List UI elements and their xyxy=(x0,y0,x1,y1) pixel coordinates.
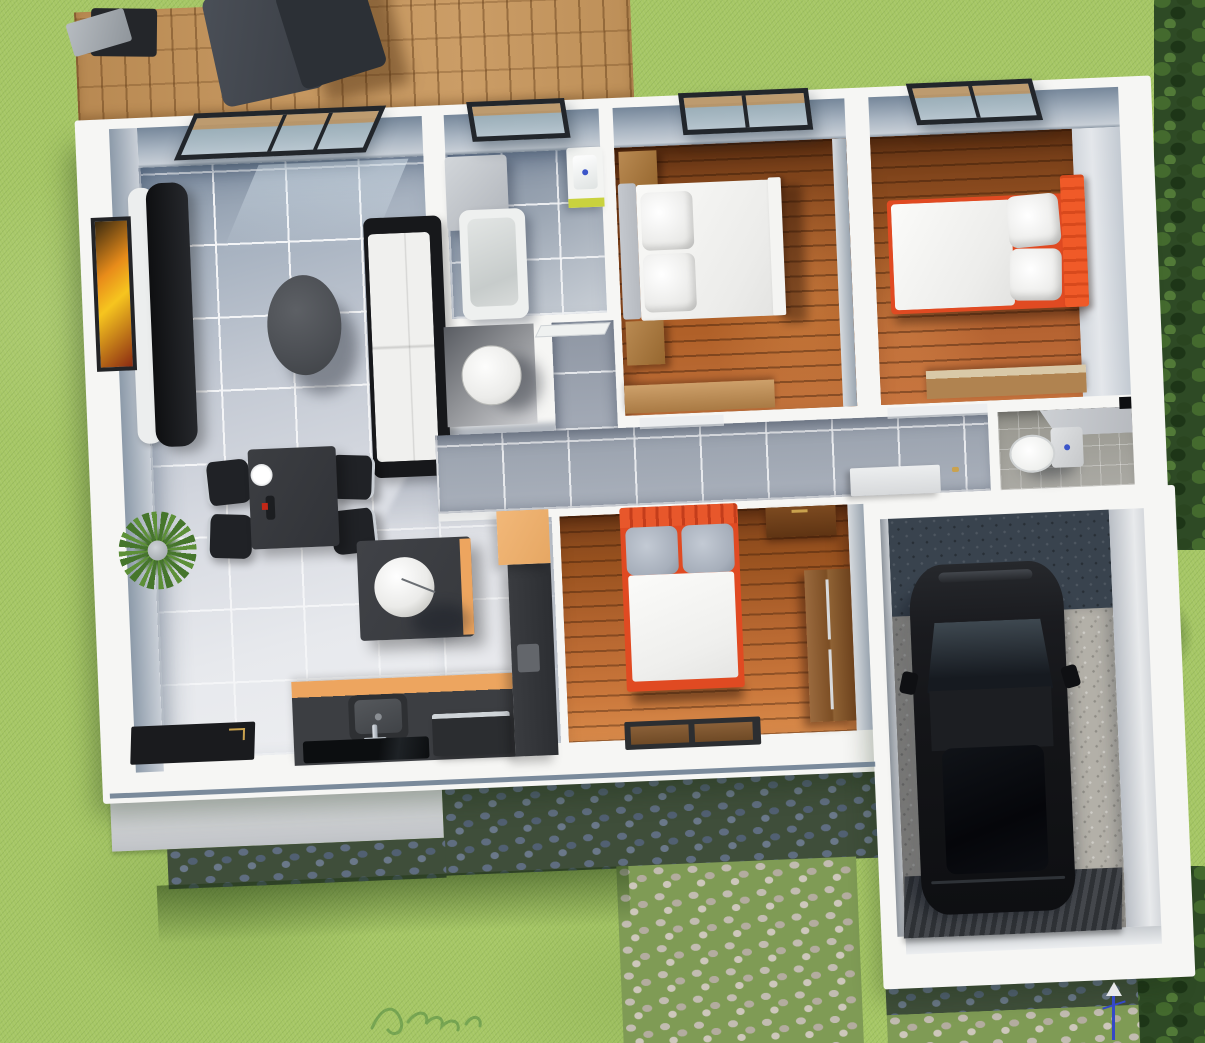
doormat-panel xyxy=(694,722,753,742)
bed3-duvet xyxy=(628,571,738,681)
window-mullion xyxy=(968,86,981,118)
wardrobe-handle xyxy=(825,579,831,639)
dishwasher-icon xyxy=(432,711,512,756)
mat-corner-detail xyxy=(229,728,245,741)
window-mullion xyxy=(267,115,287,152)
dresser-handle xyxy=(791,509,807,513)
window-mullion xyxy=(313,113,333,150)
car-mirror-left xyxy=(899,671,919,696)
fridge-handle xyxy=(517,644,540,673)
bedroom3-doormat xyxy=(624,716,761,750)
living-window-icon xyxy=(174,106,386,161)
site xyxy=(0,0,1205,1043)
bed1-pillow xyxy=(640,191,694,251)
bed3-pillow-gray xyxy=(625,526,679,576)
car-rear-glass xyxy=(942,745,1049,875)
car-front-trim xyxy=(938,569,1032,583)
wine-label xyxy=(262,503,268,510)
bed2-pillow xyxy=(1005,192,1062,249)
garden-light-shade xyxy=(1106,982,1122,996)
doormat-panel xyxy=(630,724,689,744)
scene-3d-floor-plan xyxy=(0,0,1205,1043)
window-mullion xyxy=(742,95,750,127)
bathtub-icon xyxy=(459,208,530,321)
garden-light-pole xyxy=(1112,992,1115,1040)
car-icon xyxy=(908,560,1077,916)
bedroom1-window-icon xyxy=(678,88,813,135)
bed3-pillow-gray xyxy=(681,523,735,573)
bed2-duvet xyxy=(891,199,1015,310)
kitchen-sink-icon xyxy=(348,693,409,741)
garden-light-icon xyxy=(1094,982,1134,1042)
wall-art-icon xyxy=(91,216,137,372)
sofa-cushions xyxy=(368,232,439,462)
potted-plant-icon xyxy=(117,510,198,595)
corridor-floor xyxy=(551,320,617,431)
toilet-tank xyxy=(1050,427,1084,468)
dining-chair xyxy=(207,514,253,559)
bed1-nightstand-lower xyxy=(625,320,665,366)
dining-chair xyxy=(203,458,253,507)
bedroom2-window-icon xyxy=(906,78,1043,125)
entry-mat xyxy=(130,722,255,765)
bathroom-window-icon xyxy=(466,98,570,142)
cobblestone-path xyxy=(616,856,865,1043)
orange-cabinet xyxy=(496,509,550,565)
light-switch-icon xyxy=(1119,397,1131,409)
car-windshield xyxy=(924,618,1053,693)
dining-table xyxy=(247,446,339,550)
tub-interior xyxy=(467,217,519,307)
wardrobe-handle xyxy=(828,649,834,709)
garage-door-handle-dot xyxy=(952,467,959,472)
wardrobe-icon xyxy=(804,568,856,722)
basin-cabinet-lime xyxy=(568,197,604,207)
bed2-pillow xyxy=(1010,248,1062,300)
bed3-dresser xyxy=(765,505,836,538)
washbasin-icon xyxy=(566,147,604,208)
watermark-squiggle xyxy=(360,988,510,1043)
car-rear-line xyxy=(931,876,1065,885)
car-roof xyxy=(929,686,1053,751)
toilet-flush-dot xyxy=(1064,444,1070,450)
hallway-sideboard xyxy=(850,465,941,497)
bed1-pillow xyxy=(643,253,697,313)
